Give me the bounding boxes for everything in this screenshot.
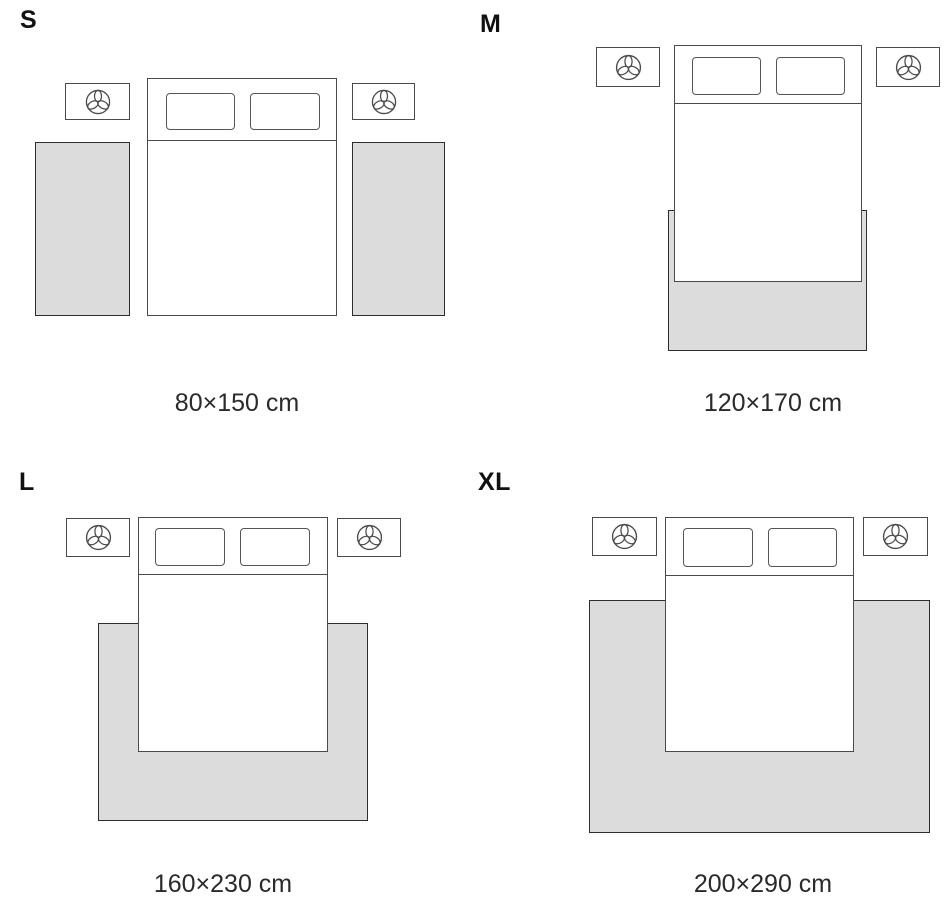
plant-icon <box>368 86 400 118</box>
pillow-right <box>240 528 310 566</box>
nightstand-left <box>592 517 657 556</box>
nightstand-left <box>596 47 660 87</box>
size-s-label: S <box>20 8 37 33</box>
pillow-left <box>692 57 761 95</box>
size-l-label: L <box>19 470 35 495</box>
size-m-quadrant: M <box>475 0 950 450</box>
size-m-label: M <box>480 12 501 37</box>
bed <box>674 45 862 282</box>
plant-icon <box>879 520 912 553</box>
bed-headboard <box>139 518 327 575</box>
nightstand-right <box>337 518 401 557</box>
size-m-dimensions: 120×170 cm <box>663 388 883 418</box>
pillow-left <box>683 528 753 567</box>
bed-headboard <box>666 518 853 576</box>
plant-icon <box>82 521 115 554</box>
nightstand-right <box>863 517 928 556</box>
plant-icon <box>82 86 114 118</box>
size-xl-quadrant: XL <box>475 450 950 900</box>
plant-icon <box>612 51 645 84</box>
bed <box>147 78 337 316</box>
nightstand-right <box>876 47 940 87</box>
plant-icon <box>353 521 386 554</box>
pillow-right <box>768 528 837 567</box>
pillow-right <box>776 57 845 95</box>
rug-left-runner <box>35 142 130 316</box>
rug-right-runner <box>352 142 445 316</box>
nightstand-right <box>352 83 415 120</box>
rug-size-guide: S <box>0 0 950 900</box>
pillow-left <box>166 93 235 130</box>
size-xl-label: XL <box>478 470 511 495</box>
pillow-left <box>155 528 225 566</box>
bed-headboard <box>148 79 336 141</box>
size-l-dimensions: 160×230 cm <box>113 869 333 899</box>
size-s-quadrant: S <box>0 0 475 450</box>
bed-headboard <box>675 46 861 104</box>
bed <box>665 517 854 752</box>
size-l-quadrant: L <box>0 450 475 900</box>
plant-icon <box>608 520 641 553</box>
nightstand-left <box>65 83 130 120</box>
plant-icon <box>892 51 925 84</box>
bed <box>138 517 328 752</box>
nightstand-left <box>66 518 130 557</box>
pillow-right <box>250 93 320 130</box>
size-s-dimensions: 80×150 cm <box>127 388 347 418</box>
size-xl-dimensions: 200×290 cm <box>653 869 873 899</box>
